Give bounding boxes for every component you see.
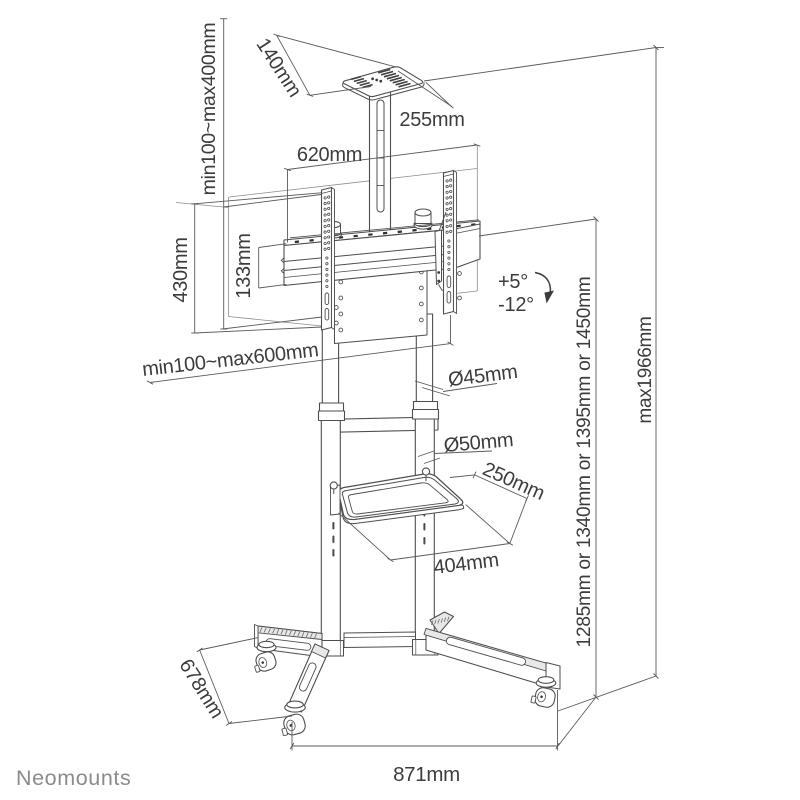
svg-text:max1966mm: max1966mm [635, 316, 656, 423]
svg-text:+5°: +5° [498, 271, 528, 293]
svg-text:430mm: 430mm [170, 237, 192, 302]
svg-text:255mm: 255mm [399, 109, 464, 131]
svg-text:133mm: 133mm [233, 233, 255, 298]
svg-text:min100~max400mm: min100~max400mm [198, 23, 220, 196]
svg-text:620mm: 620mm [297, 144, 362, 166]
svg-text:871mm: 871mm [393, 763, 460, 786]
svg-text:-12°: -12° [498, 294, 534, 316]
svg-text:Neomounts: Neomounts [16, 766, 131, 790]
svg-text:1285mm or 1340mm or 1395mm or: 1285mm or 1340mm or 1395mm or 1450mm [574, 277, 595, 648]
